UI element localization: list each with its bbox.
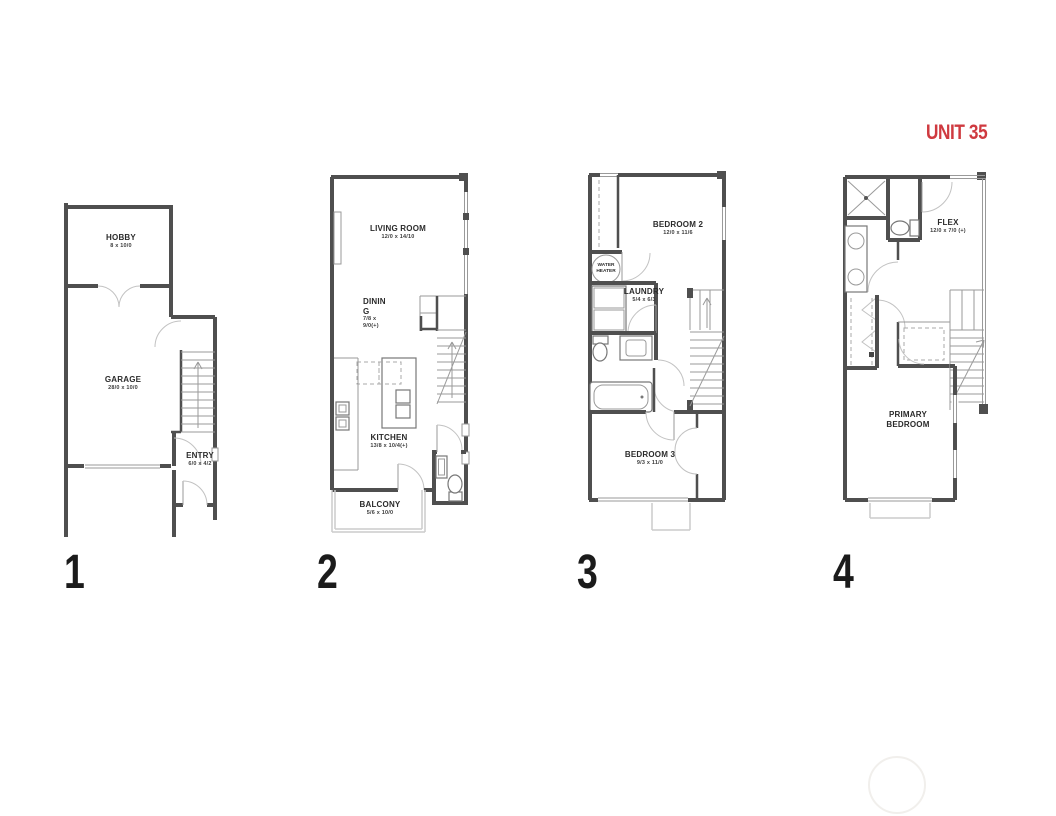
floor-4-plan (836, 164, 990, 526)
floorplan-sheet: UNIT 35 (0, 0, 1056, 816)
watermark-circle (868, 756, 926, 814)
floor-1-plan (58, 190, 220, 545)
floor-2-plan (326, 164, 476, 538)
floor-number-4: 4 (833, 549, 854, 597)
floor-number-2: 2 (317, 549, 338, 597)
floor-number-1: 1 (64, 549, 85, 597)
floor-3-plan (583, 164, 731, 542)
floor-number-3: 3 (577, 549, 598, 597)
unit-title: UNIT 35 (926, 121, 992, 145)
